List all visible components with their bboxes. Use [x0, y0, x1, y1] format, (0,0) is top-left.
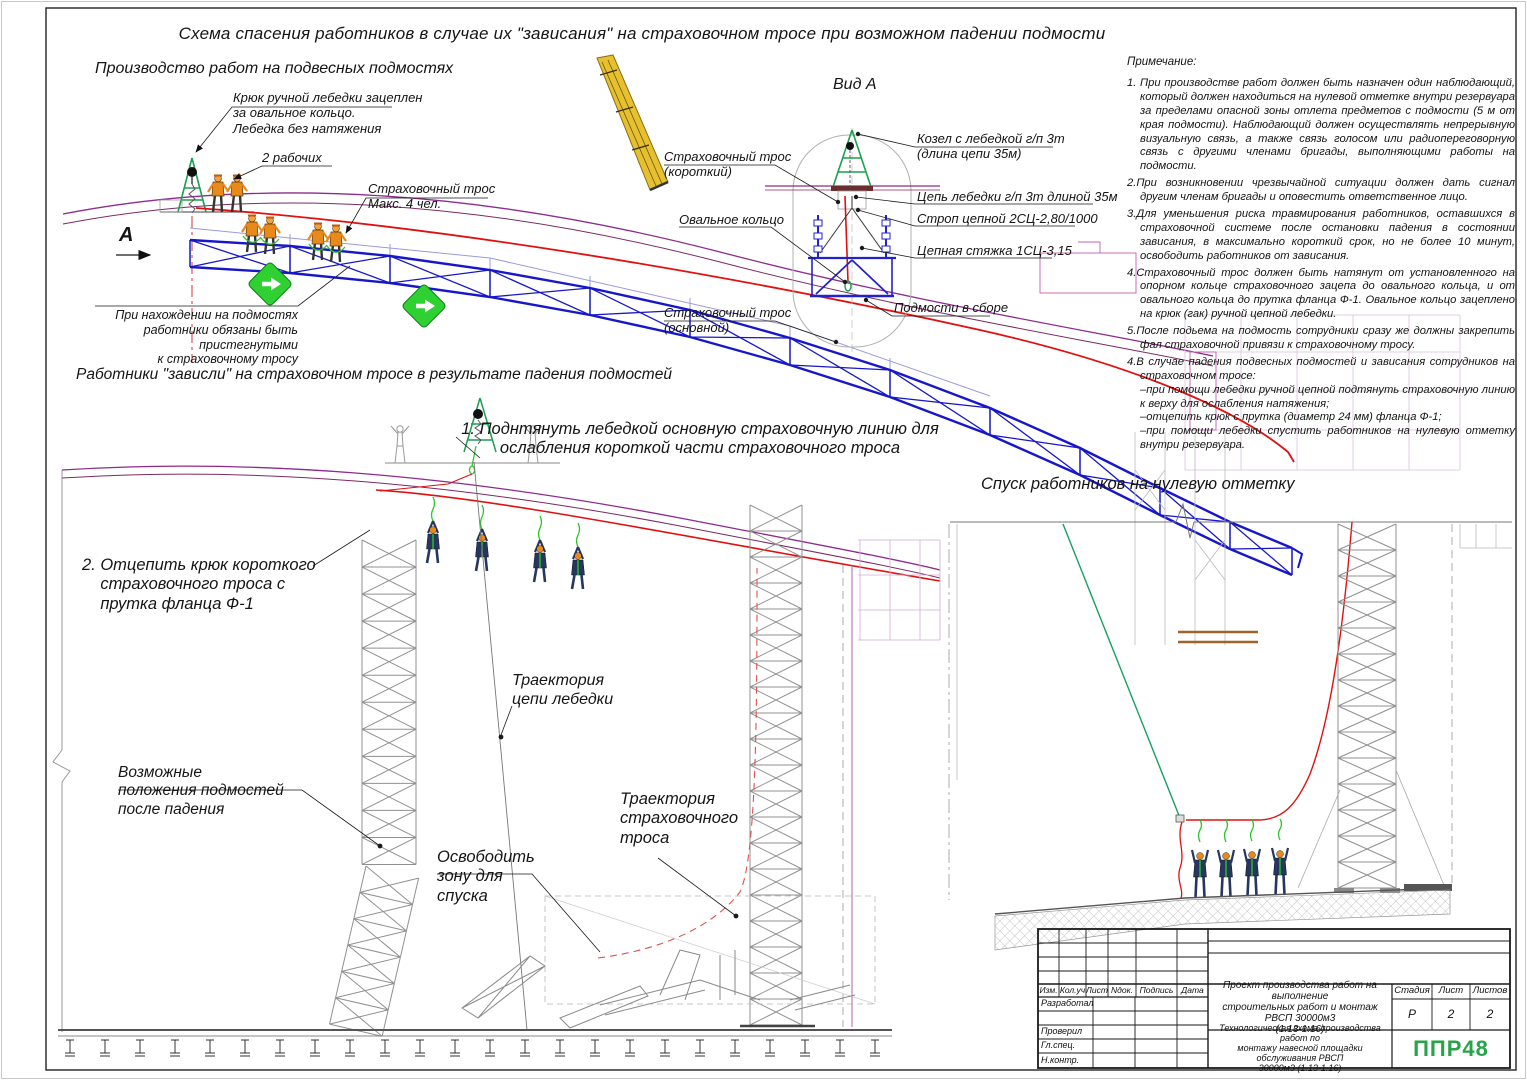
safety-cable [1186, 522, 1352, 820]
tb-doc-title: Технологическая схема производства работ… [1210, 1032, 1390, 1066]
drawing-sheet: Схема спасения работников в случае их "з… [0, 0, 1527, 1080]
scene3-linework [949, 504, 1512, 950]
tb-sheet-value: 2 [1432, 999, 1470, 1030]
label-chain-tie: Цепная стяжка 1СЦ-3,15 [917, 243, 1072, 258]
note-item: 1. При производстве работ должен быть на… [1127, 77, 1515, 174]
roof-arc [62, 466, 940, 570]
label-hook: Крюк ручной лебедки зацеплен за овальное… [233, 90, 422, 136]
tb-stage-label: Стадия [1392, 984, 1432, 999]
tower-scaffold-left [362, 540, 416, 864]
note-item: 5.После подьема на подмость сотрудники с… [1127, 325, 1515, 353]
tb-sheets-label: Листов [1470, 984, 1510, 999]
tb-project-title: Проект производства работ на выполнение … [1210, 986, 1390, 1028]
step1-label: 1. Поднтянуть лебедкой основную страхово… [455, 420, 945, 459]
scene3-title: Спуск работников на нулевую отметку [981, 475, 1294, 494]
label-assembled: Подмости в сборе [894, 300, 1008, 315]
label-two-workers: 2 рабочих [262, 150, 322, 165]
note-item: 4.В случае падения подвесных подмостей и… [1127, 356, 1515, 453]
tb-sheets-value: 2 [1470, 999, 1510, 1030]
label-fallen-positions: Возможные положения подмостей после паде… [118, 764, 284, 819]
tb-col-list: Лист [1086, 984, 1108, 997]
tb-col-podpis: Подпись [1136, 984, 1177, 997]
tb-row-developed: Разработал [1039, 997, 1095, 1011]
label-clear-zone: Освободить зону для спуска [437, 848, 535, 906]
standing-workers [1192, 848, 1288, 897]
tb-stage-value: Р [1392, 999, 1432, 1030]
note-item: 3.Для уменьшения риска травмирования раб… [1127, 208, 1515, 264]
viewa-title: Вид А [833, 76, 877, 95]
tb-row-ncontrol: Н.контр. [1039, 1053, 1095, 1068]
winch-chain [1063, 524, 1180, 818]
view-marker: А [119, 224, 133, 248]
tb-col-koluch: Кол.уч [1059, 984, 1086, 997]
tb-col-data: Дата [1177, 984, 1208, 997]
tower-scaffold-right [750, 505, 802, 1025]
crane-boom-icon [597, 55, 668, 190]
label-oval-ring: Овальное кольцо [679, 212, 784, 227]
scene2-title: Работники "зависли" на страховочном трос… [76, 366, 672, 384]
leader-lines [118, 437, 738, 952]
label-chain-trajectory: Траектория цепи лебедки [512, 672, 613, 710]
tb-sheet-label: Лист [1432, 984, 1470, 999]
scene2-linework [53, 398, 940, 1056]
label-safety-rope: Страховочный трос Макс. 4 чел. [368, 181, 495, 212]
chain-trajectory [474, 462, 527, 1030]
label-trestle: Козел с лебедкой г/п 3т (длина цепи 35м) [917, 131, 1065, 162]
support-tower [1135, 432, 1258, 645]
label-rope-main: Страховочный трос (основной) [664, 305, 791, 336]
step2-label: 2. Отцепить крюк короткого страховочного… [82, 556, 316, 614]
label-rope-short: Страховочный трос (короткий) [664, 149, 791, 180]
direction-sign-icon [247, 261, 292, 306]
label-sling: Строп цепной 2СЦ-2,80/1000 [917, 211, 1098, 226]
anchor-posts [65, 1040, 880, 1056]
label-attach-note: При нахождении на подмостях работники об… [90, 308, 298, 367]
tb-row-chief: Гл.спец. [1039, 1039, 1095, 1053]
hanging-workers [427, 497, 585, 589]
company-logo: ППР48 [1392, 1032, 1510, 1066]
label-rope-trajectory: Траектория страховочного троса [620, 790, 738, 848]
notes-block: Примечание: 1. При производстве работ до… [1127, 56, 1515, 453]
tb-row-checked: Проверил [1039, 1025, 1095, 1039]
scene1-title: Производство работ на подвесных подмостя… [95, 60, 453, 79]
label-chain: Цепь лебедки г/п 3т длиной 35м [917, 189, 1118, 204]
note-item: 2.При возникновении чрезвычайной ситуаци… [1127, 177, 1515, 205]
tower-scaffold-tilted [330, 866, 419, 1036]
note-item: 4.Страховочный трос должен быть натянут … [1127, 267, 1515, 323]
tb-col-izm: Изм. [1038, 984, 1059, 997]
rope-trajectory [598, 568, 757, 958]
tb-col-ndok: Nдок. [1108, 984, 1136, 997]
sheet-title: Схема спасения работников в случае их "з… [167, 24, 1117, 44]
notes-title: Примечание: [1127, 56, 1515, 68]
safety-cable [376, 490, 940, 581]
break-line [53, 750, 70, 782]
